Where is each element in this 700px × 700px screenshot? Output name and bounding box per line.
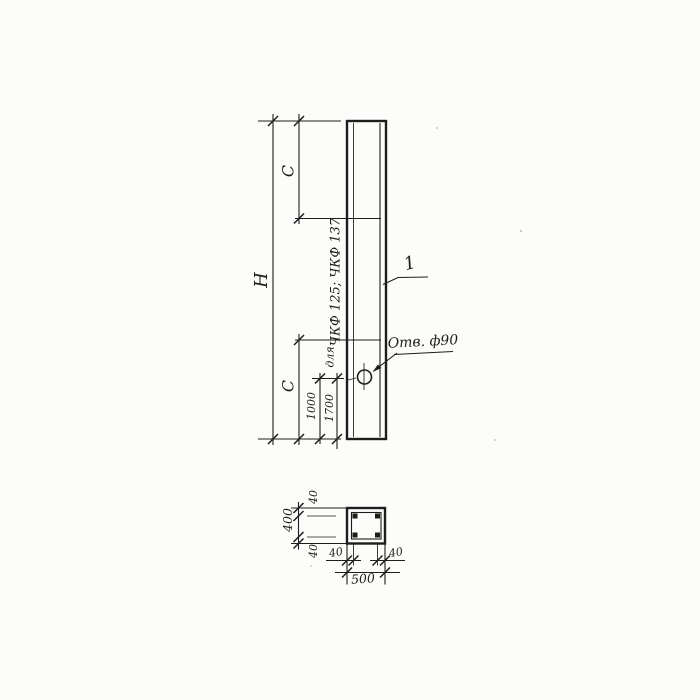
note-for-label: для: [324, 346, 337, 367]
section-extension-lines: [291, 508, 347, 544]
section-dim-label-cover-left: 40: [327, 545, 344, 560]
section-view: 40 400 40 40 40 500: [280, 490, 405, 587]
section-outline: [347, 508, 385, 544]
section-dim-label-height: 400: [280, 508, 295, 533]
hole-label: Отв. ф90: [387, 332, 458, 352]
rebar-dot: [353, 533, 358, 538]
dim-label-h: Н: [251, 272, 272, 289]
part-label: 1: [402, 252, 418, 275]
section-dim-label-cover-right: 40: [387, 545, 404, 560]
dim-label-1700: 1700: [323, 394, 336, 422]
section-dim-label-width: 500: [351, 570, 376, 587]
section-dim-label-cover-bottom: 40: [307, 544, 320, 559]
rebar-dot: [375, 533, 380, 538]
dim-label-1000: 1000: [305, 392, 318, 420]
part-leader-line: [383, 277, 428, 285]
hole-circle: [358, 370, 372, 384]
hole-label-underline: [394, 352, 453, 355]
note-series-label: ЧКФ 125; ЧКФ 137: [329, 217, 344, 346]
technical-drawing: Отв. ф90 1 Н С С 1000 1700 ЧКФ 125; ЧКФ …: [0, 0, 700, 700]
elevation-view: Отв. ф90 1 Н С С 1000 1700 ЧКФ 125; ЧКФ …: [251, 114, 459, 449]
rebar-dots: [353, 514, 381, 538]
rebar-dot: [375, 514, 380, 519]
dim-label-c-top: С: [279, 165, 298, 177]
dim-label-c-bottom: С: [279, 380, 298, 392]
drawing-sheet: Отв. ф90 1 Н С С 1000 1700 ЧКФ 125; ЧКФ …: [0, 0, 700, 700]
rebar-dot: [353, 514, 358, 519]
section-dim-label-cover-top: 40: [307, 490, 320, 505]
